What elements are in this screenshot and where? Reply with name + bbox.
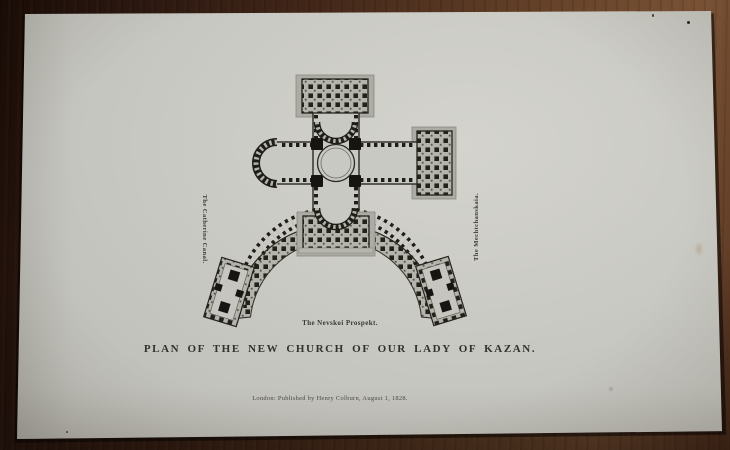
south-steps	[299, 248, 373, 253]
east-wing-block	[417, 131, 452, 195]
north-portico-block	[302, 79, 368, 113]
paper-speck	[66, 431, 68, 433]
foxing-spot	[694, 241, 704, 257]
label-nevskoi-prospekt: The Nevskoi Prospekt.	[240, 319, 440, 327]
north-inner-apse	[317, 122, 355, 141]
foxing-spot	[608, 386, 614, 392]
label-catherine-canal: The Catherine Canal.	[199, 192, 209, 266]
publisher-imprint: London: Published by Henry Colburn, Augu…	[230, 395, 430, 402]
plate-title: PLAN OF THE NEW CHURCH OF OUR LADY OF KA…	[50, 343, 630, 355]
print-paper: The Catherine Canal. The Mechtchanskaia.…	[0, 0, 730, 450]
church-plan-engraving	[190, 65, 510, 335]
central-dome	[318, 145, 355, 182]
west-apse	[256, 142, 277, 184]
paper-speck	[652, 14, 654, 17]
paper-speck	[687, 21, 690, 24]
cathedral-cross-body	[256, 75, 456, 256]
label-mechtchanskaia: The Mechtchanskaia.	[472, 190, 482, 264]
south-inner-apse	[317, 208, 355, 227]
